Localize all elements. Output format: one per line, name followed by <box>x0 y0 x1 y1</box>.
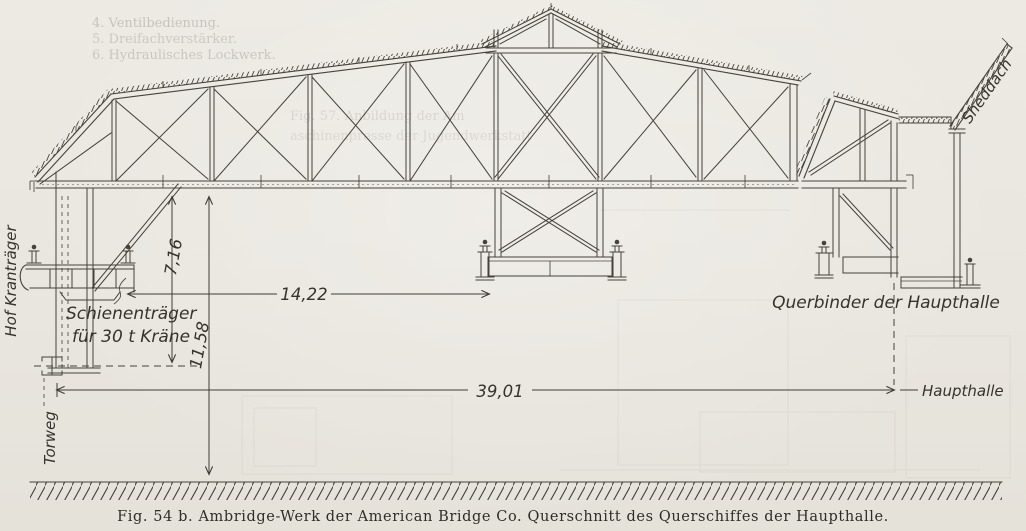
querbinder-frame <box>794 91 980 385</box>
label-querbinder: Querbinder der Haupthalle <box>772 293 1000 313</box>
label-sheddach: Sheddach <box>958 56 1015 127</box>
label-hof-krantraeger: Hof Kranträger <box>2 224 20 336</box>
shed-column <box>949 129 965 288</box>
bleedthrough-shapes <box>242 210 1010 478</box>
roof-monitor <box>479 3 623 53</box>
crane-rail <box>27 245 41 263</box>
crane-rail <box>960 258 980 288</box>
bleed-line-4: Fig. 57. Anbildung der Am <box>290 109 465 124</box>
dim-7-16: 7,16 <box>161 237 186 276</box>
bleed-line-2: 5. Dreifachverstärker. <box>92 32 237 47</box>
crane-rail <box>815 241 833 278</box>
crane-rail <box>608 240 626 280</box>
label-schienentraeger-2: für 30 t Kräne <box>72 327 190 347</box>
center-crane-tower <box>476 188 626 280</box>
crane-rail <box>476 240 494 280</box>
crane-rail <box>121 245 135 263</box>
bleed-line-3: 6. Hydraulisches Lockwerk. <box>92 48 276 63</box>
left-wall-column <box>42 172 181 408</box>
bleed-line-1: 4. Ventilbedienung. <box>92 16 220 31</box>
bleed-line-5: aschinenpresse der Jugendwerkstatt <box>290 129 533 144</box>
scanned-book-page: 4. Ventilbedienung. 5. Dreifachverstärke… <box>0 0 1026 531</box>
figure-caption: Fig. 54 b. Ambridge-Werk der American Br… <box>117 509 889 525</box>
label-torweg: Torweg <box>41 411 59 465</box>
yard-crane-girder <box>20 245 135 300</box>
label-schienentraeger-1: Schienenträger <box>66 304 197 324</box>
dim-39-01: 39,01 <box>476 382 523 401</box>
dim-14-22: 14,22 <box>280 285 327 304</box>
ground-hatching <box>30 482 1002 500</box>
label-haupthalle: Haupthalle <box>922 382 1004 400</box>
text-labels: Hof Kranträger Schienenträger für 30 t K… <box>2 56 1016 465</box>
figure-54b-drawing: 4. Ventilbedienung. 5. Dreifachverstärke… <box>0 0 1026 531</box>
